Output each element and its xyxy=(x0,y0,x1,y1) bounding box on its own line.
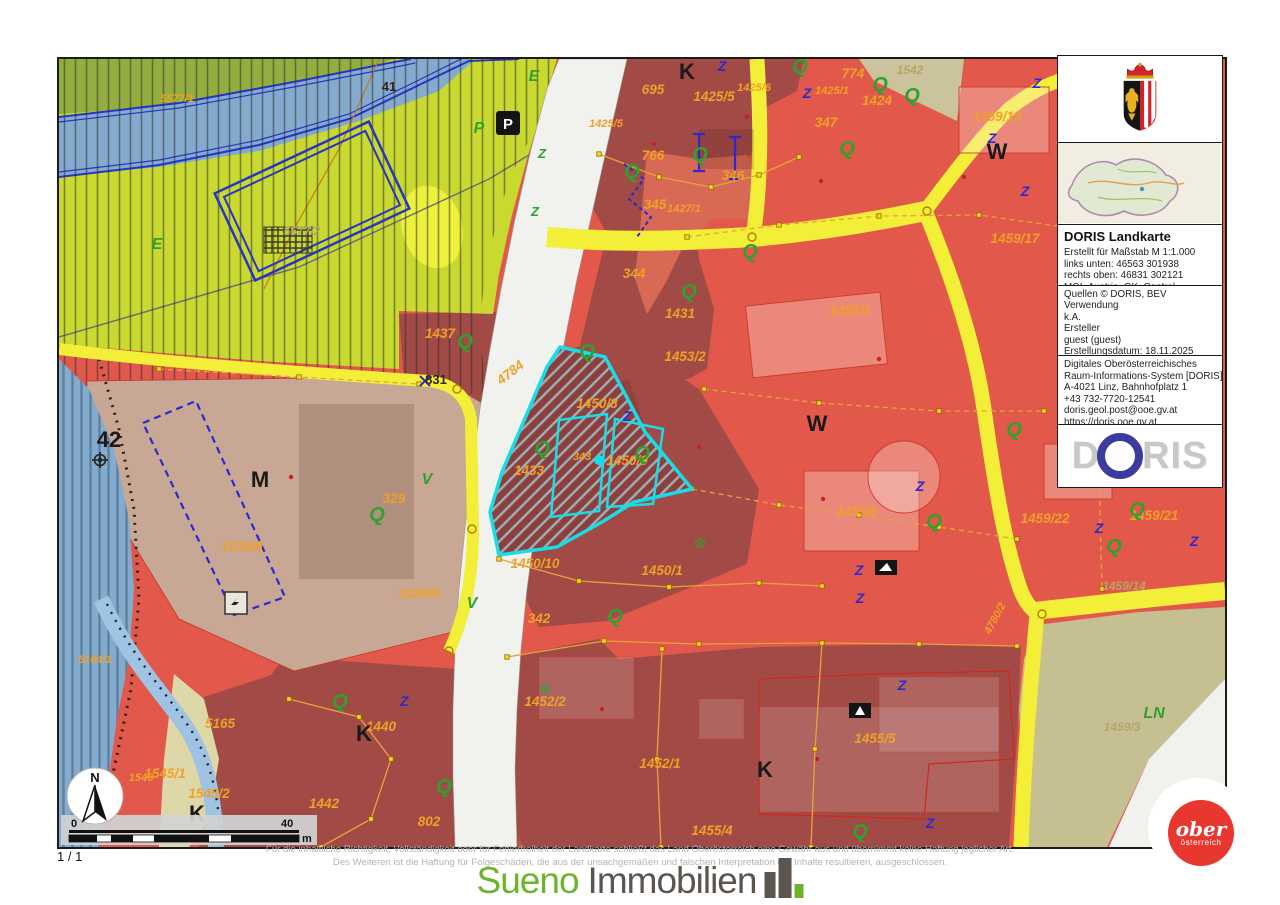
map-label: 1425/1 xyxy=(815,85,849,97)
map-label: 1459/22 xyxy=(1021,511,1070,526)
power-station-icon xyxy=(225,592,247,614)
map-label: Z xyxy=(897,677,907,693)
panel-org-line: Raum-Informations-System [DORIS] xyxy=(1064,371,1216,383)
map-canvas: 5577/16951425/51425/51425/61425/17741424… xyxy=(59,59,1225,847)
boundary-point-marker xyxy=(157,367,161,371)
map-label: K xyxy=(757,757,773,782)
map-label: 766 xyxy=(642,148,665,163)
map-label: 342 xyxy=(528,611,551,626)
doris-logo-ris: RIS xyxy=(1142,435,1208,478)
boundary-point-marker xyxy=(757,173,761,177)
map-label: Z xyxy=(987,130,997,146)
map-label: 1450/10 xyxy=(511,556,560,571)
boundary-point-marker xyxy=(937,409,941,413)
map-label: Q xyxy=(634,443,650,465)
map-label: Q xyxy=(369,504,385,526)
map-label: 1453/2 xyxy=(664,349,706,364)
boundary-point-marker xyxy=(697,642,701,646)
corner-logo-line1: ober xyxy=(1176,820,1227,838)
scale-start-label: 0 xyxy=(71,818,77,830)
map-label: E xyxy=(529,68,541,85)
doris-logo-ring-icon xyxy=(1097,433,1143,479)
map-label: 1431 xyxy=(665,306,695,321)
map-label: K xyxy=(356,721,372,746)
selected-point-marker xyxy=(594,455,604,465)
boundary-point-marker xyxy=(777,223,781,227)
map-label: Q xyxy=(607,606,623,628)
map-label: 1442 xyxy=(309,796,340,811)
map-label: Z xyxy=(854,562,864,578)
map-label: Z xyxy=(925,815,935,831)
map-label: 1437 xyxy=(425,326,457,341)
map-label: 344 xyxy=(623,266,646,281)
map-label: Z xyxy=(1094,520,1104,536)
map-label: ⊛ xyxy=(694,535,707,552)
boundary-point-marker xyxy=(505,655,509,659)
panel-source-line: Ersteller xyxy=(1064,323,1216,335)
boundary-point-marker xyxy=(709,185,713,189)
map-label: 1455/6 xyxy=(836,504,878,519)
map-label: Q xyxy=(692,144,708,166)
panel-meta-line: Erstellt für Maßstab M 1:1.000 xyxy=(1064,247,1216,259)
map-label: 1427/1 xyxy=(667,203,701,215)
map-label: 831 xyxy=(425,372,447,387)
map-label: Q xyxy=(457,331,473,353)
upper-austria-crest xyxy=(1111,59,1169,139)
map-label: Q xyxy=(1106,536,1122,558)
boundary-point-marker xyxy=(287,697,291,701)
map-label: 345 xyxy=(644,197,667,212)
boundary-point-marker xyxy=(813,747,817,751)
map-label: Q xyxy=(624,161,640,183)
panel-org-line: Digitales Oberösterreichisches xyxy=(1064,359,1216,371)
boundary-point-marker xyxy=(685,235,689,239)
map-label: Q xyxy=(926,511,942,533)
map-label: M xyxy=(251,467,269,492)
buildings-icon xyxy=(764,858,803,898)
north-arrow: N xyxy=(67,768,123,824)
boundary-point-marker xyxy=(597,152,601,156)
map-label: 695 xyxy=(642,82,665,97)
map-label: 1459/17 xyxy=(991,231,1041,246)
panel-title-block: DORIS Landkarte Erstellt für Maßstab M 1… xyxy=(1057,224,1223,286)
panel-title: DORIS Landkarte xyxy=(1064,229,1216,244)
map-label: Z xyxy=(1032,75,1042,91)
panel-org-line: A-4021 Linz, Bahnhofplatz 1 xyxy=(1064,382,1216,394)
map-label: 5165 xyxy=(205,716,236,731)
map-label: 1450/8 xyxy=(576,396,618,411)
boundary-point-marker xyxy=(297,375,301,379)
boundary-point-marker xyxy=(777,503,781,507)
map-label: 5577/2 xyxy=(284,224,321,238)
map-label: LN xyxy=(1143,705,1165,722)
map-label: W xyxy=(807,411,828,436)
boundary-point-marker xyxy=(757,581,761,585)
boundary-point-marker xyxy=(657,175,661,179)
boundary-point-marker xyxy=(660,647,664,651)
land-ooe-logo: ober österreich xyxy=(1168,800,1234,866)
map-label: P xyxy=(503,116,513,133)
map-label: 1545/2 xyxy=(188,786,230,801)
map-label: Q xyxy=(904,85,920,107)
map-label: Q xyxy=(1129,499,1145,521)
map-label: Z xyxy=(802,85,812,101)
map-label: 802 xyxy=(418,814,441,829)
boundary-point-marker xyxy=(702,387,706,391)
map-label: 42 xyxy=(97,427,121,452)
map-label: P xyxy=(474,120,485,137)
map-label: 774 xyxy=(842,66,865,81)
panel-meta-line: rechts oben: 46831 302121 xyxy=(1064,270,1216,282)
map-label: Q xyxy=(534,438,550,460)
map-label: 1459/15 xyxy=(973,109,1022,124)
map-label: E xyxy=(152,236,164,253)
map-label: 1450/1 xyxy=(641,563,682,578)
map-label: Q xyxy=(872,74,888,96)
map-label: Q xyxy=(852,821,868,843)
boundary-point-marker xyxy=(577,579,581,583)
watermark-secondary: Immobilien xyxy=(588,860,757,902)
camera-icon xyxy=(875,560,897,575)
map-label: Z xyxy=(1189,533,1199,549)
boundary-point-marker xyxy=(497,557,501,561)
panel-source-block: Quellen © DORIS, BEV Verwendung k.A. Ers… xyxy=(1057,285,1223,357)
map-label: Z xyxy=(530,204,540,219)
map-label: Q xyxy=(792,59,808,78)
boundary-point-marker xyxy=(667,585,671,589)
map-label: Q xyxy=(436,776,452,798)
panel-source-line: Erstellungsdatum: 18.11.2025 xyxy=(1064,346,1216,357)
overview-map xyxy=(1057,142,1223,226)
map-label: 1455/1 xyxy=(829,303,870,318)
map-label: Z xyxy=(855,590,865,606)
map-label: 346 xyxy=(722,168,745,183)
map-label: Q xyxy=(839,138,855,160)
panel-org-line: doris.geol.post@ooe.gv.at xyxy=(1064,405,1216,417)
boundary-point-marker xyxy=(357,715,361,719)
map-label: Z xyxy=(399,693,409,709)
map-label: 329 xyxy=(383,491,406,506)
map-label: 1455/4 xyxy=(691,823,733,838)
panel-org-line: +43 732-7720-12541 xyxy=(1064,394,1216,406)
map-label: Q xyxy=(1006,419,1022,441)
boundary-point-marker xyxy=(1015,537,1019,541)
map-label: V xyxy=(467,595,479,612)
map-label: 1425/5 xyxy=(693,89,735,104)
watermark-primary: Sueno xyxy=(477,860,579,902)
map-label: 1459/14 xyxy=(1102,579,1146,593)
boundary-point-marker xyxy=(602,639,606,643)
map-label: Z xyxy=(537,146,547,161)
map-label: 1433 xyxy=(514,463,545,478)
boundary-point-marker xyxy=(1042,409,1046,413)
boundary-point-marker xyxy=(917,642,921,646)
map-label: 1425/6 xyxy=(737,82,772,94)
scale-end-label: 40 xyxy=(281,818,293,830)
map-label: Z xyxy=(1020,183,1030,199)
boundary-point-marker xyxy=(797,155,801,159)
boundary-point-marker xyxy=(1015,644,1019,648)
boundary-point-marker xyxy=(369,817,373,821)
map-label: 347 xyxy=(815,115,839,130)
panel-source-line: Quellen © DORIS, BEV xyxy=(1064,289,1216,301)
doris-logo: D RIS xyxy=(1057,424,1223,488)
boundary-point-marker xyxy=(820,641,824,645)
map-label: 5577/1 xyxy=(160,93,194,105)
map-label: Q xyxy=(681,281,697,303)
doris-logo-d: D xyxy=(1072,435,1100,478)
monument-icon xyxy=(849,703,871,718)
panel-source-line: Verwendung xyxy=(1064,300,1216,312)
map-label: 1542 xyxy=(897,63,924,77)
map-label: 1455/5 xyxy=(854,731,896,746)
disclaimer-line-1: Für die inhaltliche Richtigkeit, Vollstä… xyxy=(0,844,1280,855)
boundary-point-marker xyxy=(820,584,824,588)
map-label: 1452/1 xyxy=(639,756,680,771)
coat-of-arms xyxy=(1057,55,1223,143)
map-label: 5164/1 xyxy=(78,654,112,666)
corner-logo-line2: österreich xyxy=(1181,838,1222,847)
map-label: 343 xyxy=(573,451,591,463)
sueno-watermark: Sueno Immobilien xyxy=(477,858,804,902)
map-label: Q xyxy=(742,241,758,263)
map-label: 1439/9 xyxy=(221,539,263,554)
map-label: 1459/3 xyxy=(1104,720,1141,734)
boundary-point-marker xyxy=(389,757,393,761)
boundary-point-marker xyxy=(877,214,881,218)
panel-source-line: guest (guest) xyxy=(1064,335,1216,347)
info-panel: DORIS Landkarte Erstellt für Maßstab M 1… xyxy=(1057,57,1223,488)
map-label: Q xyxy=(579,341,595,363)
map-label: Q xyxy=(332,691,348,713)
map-label: K xyxy=(679,59,695,84)
boundary-point-marker xyxy=(977,213,981,217)
map-label: 41 xyxy=(382,79,396,94)
panel-org-block: Digitales Oberösterreichisches Raum-Info… xyxy=(1057,355,1223,426)
map-label: V xyxy=(422,471,434,488)
doris-map-print-page: 5577/16951425/51425/51425/61425/17741424… xyxy=(0,0,1280,905)
north-label: N xyxy=(90,770,99,785)
map-label: 1439/8 xyxy=(398,586,440,601)
boundary-point-marker xyxy=(817,401,821,405)
map-label: Z xyxy=(915,478,925,494)
map-frame: 5577/16951425/51425/51425/61425/17741424… xyxy=(57,57,1227,849)
map-label: 1546 xyxy=(129,772,154,784)
map-label: Z xyxy=(717,59,727,74)
panel-meta-line: links unten: 46563 301938 xyxy=(1064,259,1216,271)
panel-source-line: k.A. xyxy=(1064,312,1216,324)
map-label: ⊛ xyxy=(539,681,552,698)
map-label: Z xyxy=(622,408,632,424)
map-label: 1425/5 xyxy=(589,118,624,130)
